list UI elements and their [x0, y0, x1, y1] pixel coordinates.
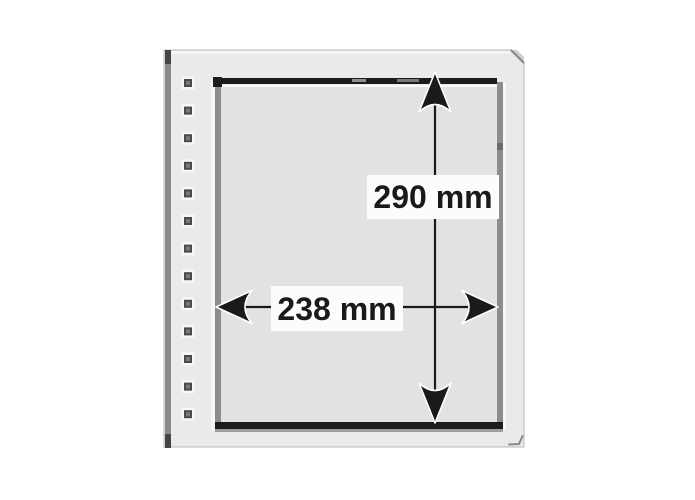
seal-strip-bottom-shadow — [215, 429, 503, 432]
pocket-border-left — [215, 82, 221, 430]
punch-hole-core — [186, 412, 190, 416]
strip-reflection-1 — [352, 79, 366, 82]
left-edge-strip — [165, 50, 171, 448]
punch-hole-core — [186, 274, 190, 278]
punch-hole-core — [186, 164, 190, 168]
pocket-interior — [221, 85, 497, 422]
punch-hole-core — [186, 136, 190, 140]
punch-hole-core — [186, 109, 190, 113]
width-label: 238 mm — [277, 291, 396, 327]
height-label: 290 mm — [373, 179, 492, 215]
dimension-diagram: 290 mm 238 mm — [0, 0, 695, 500]
strip-reflection-2 — [397, 79, 419, 82]
punch-hole-core — [186, 81, 190, 85]
product-dimension-image: 290 mm 238 mm — [0, 0, 695, 500]
seal-strip-top-cap — [213, 77, 222, 87]
punch-hole-core — [186, 247, 190, 251]
pocket-gap-right — [503, 82, 506, 430]
pocket-border-notch — [497, 143, 503, 150]
pocket-border-right — [497, 82, 503, 430]
punch-hole-core — [186, 329, 190, 333]
punch-hole-core — [186, 191, 190, 195]
punch-hole-core — [186, 385, 190, 389]
left-edge-cap-top — [165, 50, 171, 64]
left-edge-cap-bottom — [165, 434, 171, 448]
pocket-gap-left — [211, 82, 215, 430]
punch-hole-core — [186, 357, 190, 361]
sheet-top-highlight — [165, 51, 510, 54]
pocket-interior-topline — [221, 85, 497, 87]
seal-strip-bottom — [215, 422, 503, 429]
punch-hole-core — [186, 219, 190, 223]
pocket — [211, 77, 506, 432]
punch-hole-core — [186, 302, 190, 306]
